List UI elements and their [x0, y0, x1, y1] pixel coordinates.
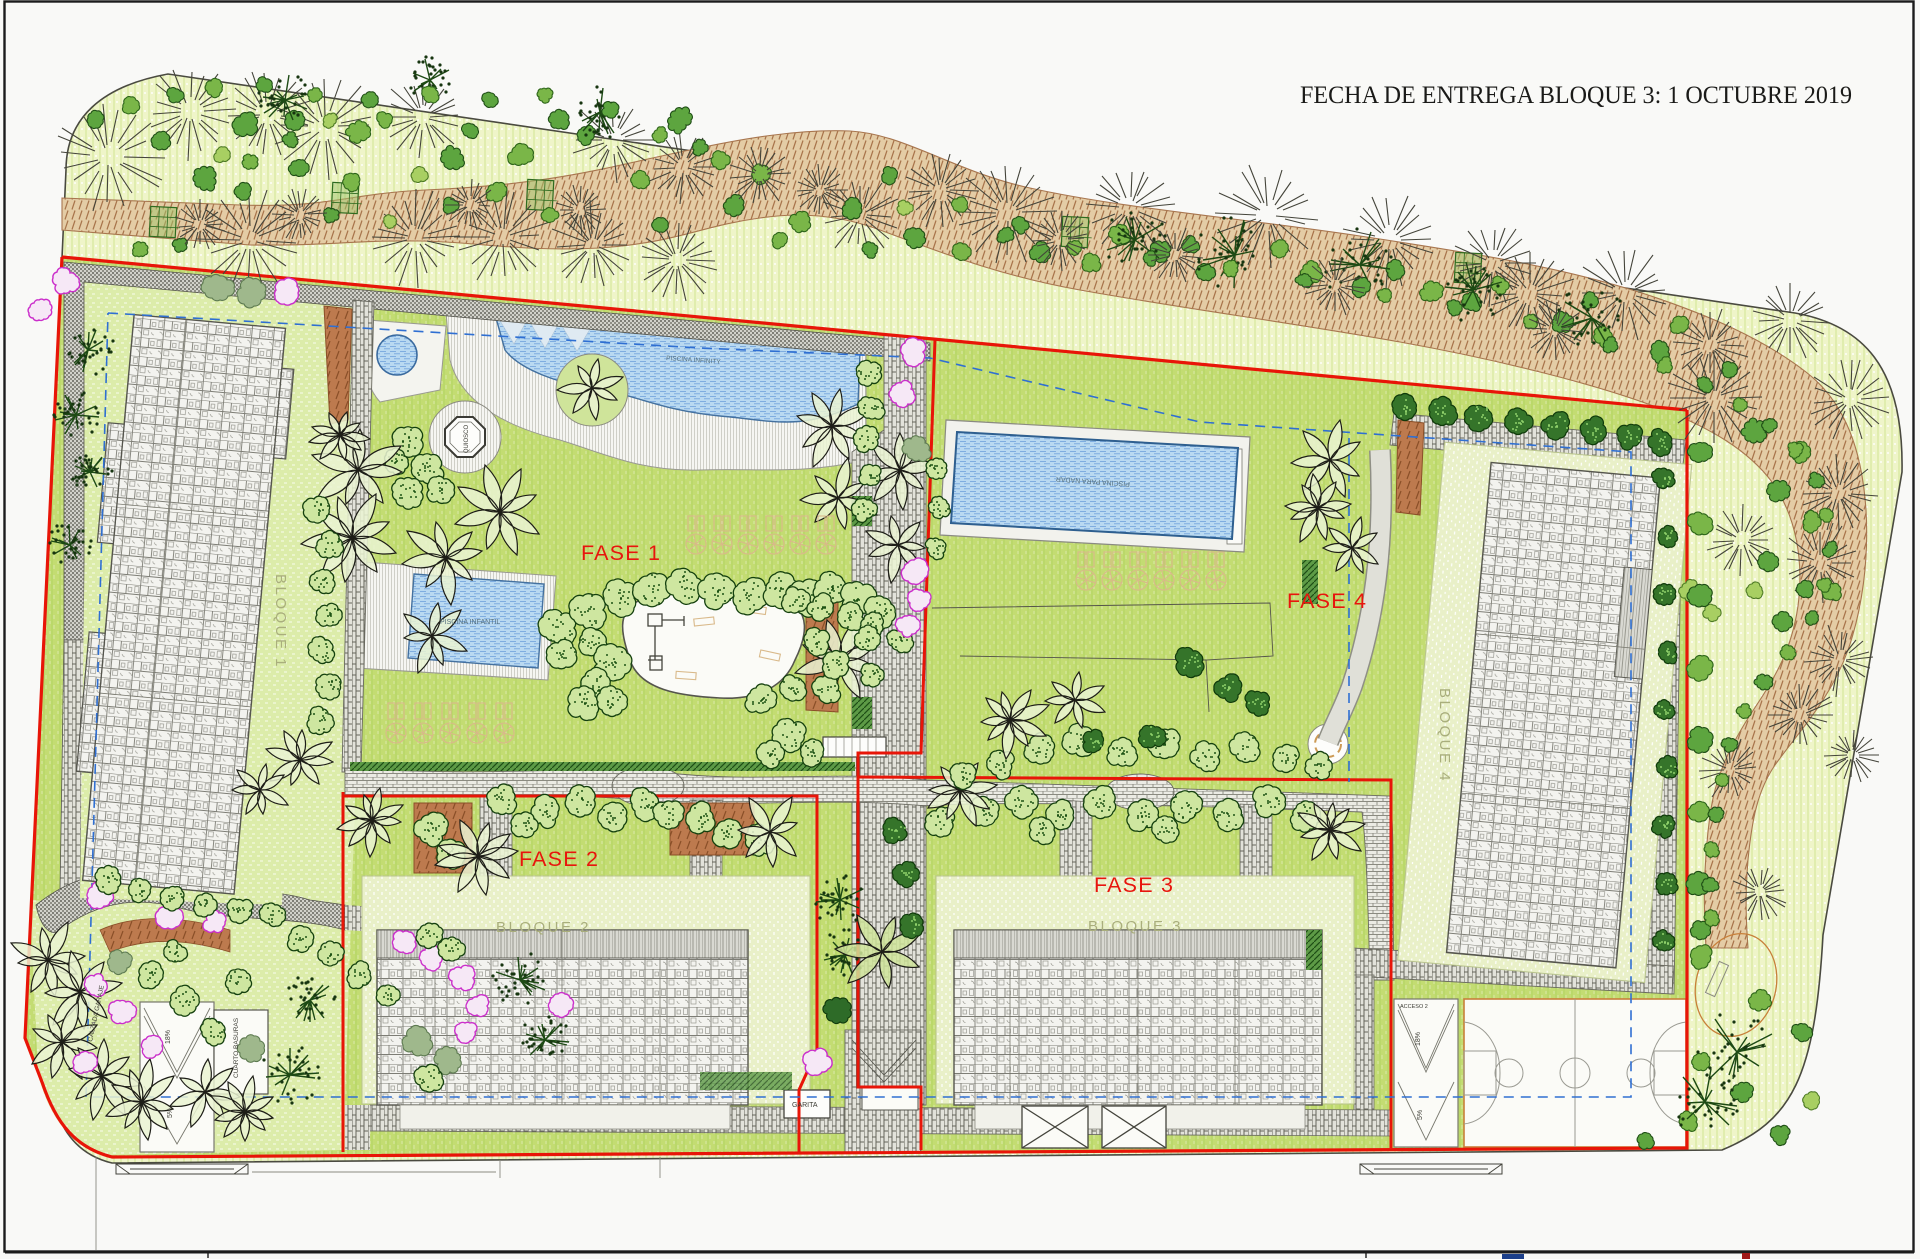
svg-text:FASE 2: FASE 2 [519, 847, 599, 871]
svg-text:BLOQUE 2: BLOQUE 2 [496, 919, 591, 936]
svg-text:BLOQUE 4: BLOQUE 4 [1436, 688, 1453, 783]
svg-text:FECHA DE ENTREGA BLOQUE 3: 1 O: FECHA DE ENTREGA BLOQUE 3: 1 OCTUBRE 201… [1300, 82, 1852, 109]
svg-text:5%: 5% [167, 1108, 174, 1118]
svg-text:FASE 1: FASE 1 [581, 541, 661, 565]
svg-text:CUARTO BASURAS: CUARTO BASURAS [233, 1017, 240, 1078]
svg-text:18%: 18% [165, 1030, 172, 1044]
svg-text:QUIOSCO: QUIOSCO [464, 425, 470, 454]
svg-text:GARITA: GARITA [792, 1102, 818, 1109]
svg-text:5%: 5% [1417, 1110, 1424, 1120]
svg-text:PISCINA INFANTIL: PISCINA INFANTIL [440, 619, 500, 626]
svg-text:FASE 3: FASE 3 [1094, 873, 1174, 897]
svg-text:ACCESO 2: ACCESO 2 [1400, 1004, 1428, 1010]
svg-text:18%: 18% [1415, 1032, 1422, 1046]
svg-text:BLOQUE 1: BLOQUE 1 [272, 574, 289, 669]
svg-text:BLOQUE 3: BLOQUE 3 [1088, 918, 1183, 935]
svg-text:FASE 4: FASE 4 [1287, 589, 1367, 613]
